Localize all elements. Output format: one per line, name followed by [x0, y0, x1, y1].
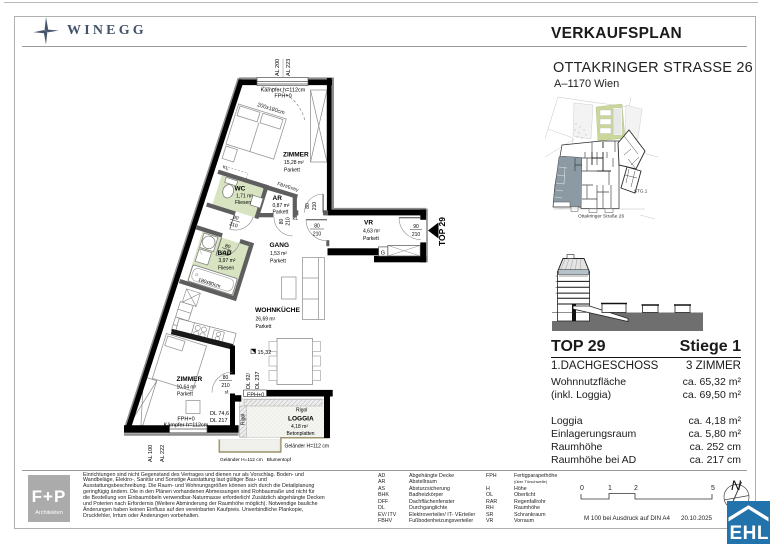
svg-text:AR: AR [273, 195, 283, 202]
svg-text:26,69 m²: 26,69 m² [256, 317, 276, 323]
svg-text:FPH+0: FPH+0 [274, 94, 291, 100]
svg-text:Fliesen: Fliesen [218, 266, 234, 272]
svg-text:DL 74,6: DL 74,6 [210, 411, 229, 417]
svg-text:ZIMMER: ZIMMER [177, 376, 203, 383]
svg-text:Parkett: Parkett [256, 324, 272, 330]
svg-text:210: 210 [286, 217, 292, 226]
svg-text:Parkett: Parkett [270, 259, 286, 265]
svg-text:FPH+0: FPH+0 [247, 393, 264, 399]
svg-text:LOGGIA: LOGGIA [288, 416, 314, 423]
svg-text:KL: KL [222, 164, 229, 171]
svg-text:KL: KL [293, 216, 299, 221]
svg-text:15,28 m²: 15,28 m² [284, 160, 304, 166]
svg-text:15,32: 15,32 [258, 350, 272, 356]
svg-text:Parkett: Parkett [273, 210, 289, 216]
svg-text:Parkett: Parkett [177, 392, 193, 398]
svg-text:1,71 m²: 1,71 m² [236, 194, 253, 200]
svg-text:80: 80 [314, 224, 320, 230]
svg-text:sf.: sf. [225, 390, 230, 395]
svg-text:10,64 m²: 10,64 m² [177, 385, 197, 391]
svg-text:4,63 m²: 4,63 m² [363, 229, 380, 235]
svg-text:ZIMMER: ZIMMER [283, 152, 309, 159]
svg-text:GANG: GANG [270, 242, 290, 249]
svg-text:Kämpfer h=112cm: Kämpfer h=112cm [164, 423, 209, 429]
svg-text:1,53 m²: 1,53 m² [270, 251, 287, 257]
svg-text:210: 210 [412, 232, 421, 238]
svg-text:210: 210 [221, 383, 230, 389]
svg-text:Rigol: Rigol [241, 414, 247, 425]
svg-text:AL 223: AL 223 [286, 59, 292, 76]
svg-text:Rigol: Rigol [296, 408, 307, 414]
svg-text:FPH+0: FPH+0 [230, 404, 236, 421]
svg-text:90: 90 [413, 224, 419, 230]
svg-text:80: 80 [279, 219, 285, 225]
svg-text:210: 210 [313, 232, 322, 238]
svg-text:BAD: BAD [218, 250, 232, 257]
svg-text:Fliesen: Fliesen [235, 200, 251, 206]
svg-text:AL 100: AL 100 [148, 445, 154, 462]
svg-text:DL 217: DL 217 [210, 418, 228, 424]
svg-text:WOHNKÜCHE: WOHNKÜCHE [255, 305, 300, 314]
svg-text:210: 210 [312, 202, 318, 211]
svg-text:Geländer H=112 cm Blumentopf: Geländer H=112 cm Blumentopf [220, 457, 292, 463]
svg-text:TOP 29: TOP 29 [437, 217, 447, 246]
svg-text:80: 80 [223, 375, 229, 381]
svg-text:DL 237: DL 237 [255, 371, 261, 389]
svg-text:4,18 m²: 4,18 m² [291, 424, 308, 430]
svg-text:AL 200: AL 200 [275, 59, 281, 76]
svg-text:Parkett: Parkett [284, 168, 300, 174]
svg-text:VR: VR [364, 220, 373, 227]
svg-text:Geländer H=112 cm: Geländer H=112 cm [285, 444, 330, 450]
svg-text:Parkett: Parkett [363, 236, 379, 242]
svg-text:WC: WC [235, 186, 246, 193]
svg-text:G: G [381, 250, 385, 256]
svg-text:0,87 m²: 0,87 m² [273, 203, 290, 209]
svg-text:80: 80 [305, 203, 311, 209]
svg-text:DL 92/: DL 92/ [246, 373, 252, 389]
svg-text:AL 222: AL 222 [160, 445, 166, 462]
svg-text:3,97 m²: 3,97 m² [219, 258, 236, 264]
svg-text:Betonplatten: Betonplatten [287, 431, 315, 437]
